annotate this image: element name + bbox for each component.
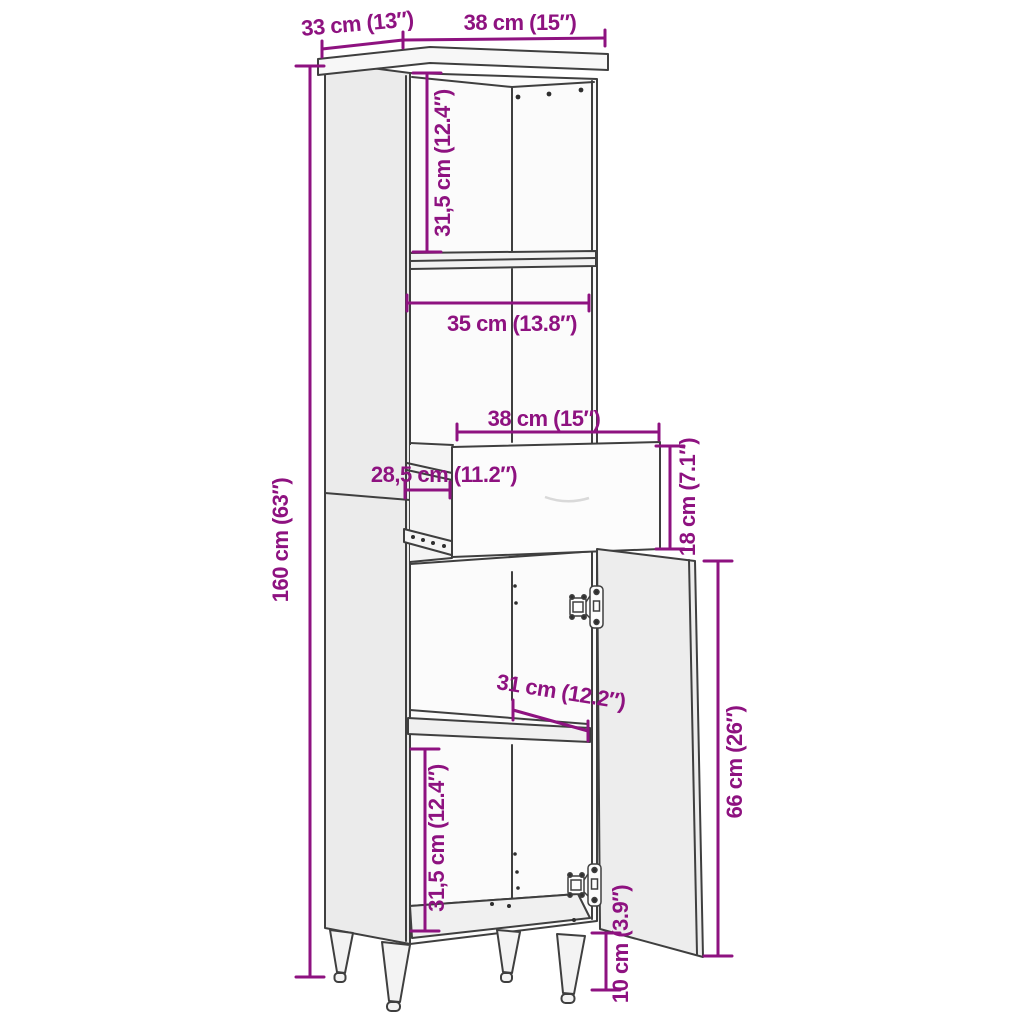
floor-screw <box>490 902 494 906</box>
back-panel-hole <box>547 92 552 97</box>
drawer-cavity <box>404 443 455 562</box>
dim-overall-height-label: 160 cm (63″) <box>268 478 293 603</box>
leg <box>557 934 585 994</box>
back-panel-hole <box>579 88 584 93</box>
dim-drawer-height-label: 18 cm (7.1″) <box>675 438 700 556</box>
dim-top-depth: 33 cm (13″) <box>300 6 415 57</box>
side-panel <box>325 62 410 944</box>
furniture-dimension-diagram: 33 cm (13″) 38 cm (15″) 160 cm (63″) 31,… <box>0 0 1024 1024</box>
leg <box>497 930 520 973</box>
leg-foot <box>562 994 575 1003</box>
drawer <box>452 442 660 557</box>
shelf-pin-hole <box>515 870 519 874</box>
dim-top-width: 38 cm (15″) <box>403 10 605 46</box>
back-panel-hole <box>516 95 521 100</box>
dim-middle-compartment-width-label: 35 cm (13.8″) <box>447 311 577 336</box>
shelf-pin-hole <box>513 852 517 856</box>
cabinet-line-drawing: 33 cm (13″) 38 cm (15″) 160 cm (63″) 31,… <box>0 0 1024 1024</box>
dim-overall-height: 160 cm (63″) <box>268 66 324 977</box>
cabinet <box>318 47 703 1011</box>
leg <box>330 930 353 973</box>
dim-drawer-height: 18 cm (7.1″) <box>656 438 700 556</box>
dim-upper-compartment-height-label: 31,5 cm (12.4″) <box>430 89 455 237</box>
hinge-slot <box>592 879 598 889</box>
dim-door-height-label: 66 cm (26″) <box>722 706 747 819</box>
hinge-slot <box>594 601 600 611</box>
dim-top-depth-label: 33 cm (13″) <box>300 6 415 41</box>
dim-leg-height-label: 10 cm (3.9″) <box>608 885 633 1003</box>
leg-foot <box>335 973 346 982</box>
shelf-pin-hole <box>516 886 520 890</box>
dim-door-height: 66 cm (26″) <box>704 561 747 956</box>
legs <box>330 930 585 1011</box>
leg-foot <box>387 1002 400 1011</box>
shelf-pin-hole <box>513 584 517 588</box>
top-panel <box>318 47 608 75</box>
dim-drawer-width-label: 38 cm (15″) <box>488 406 601 431</box>
shelf-pin-hole <box>514 601 518 605</box>
dim-lower-compartment-height-label: 31,5 cm (12.4″) <box>424 764 449 912</box>
dim-drawer-depth-label: 28,5 cm (11.2″) <box>371 462 517 487</box>
leg-foot <box>501 973 512 982</box>
dim-top-width-label: 38 cm (15″) <box>464 10 577 35</box>
floor-screw <box>507 904 511 908</box>
leg <box>382 942 410 1002</box>
floor-screw <box>572 918 576 922</box>
